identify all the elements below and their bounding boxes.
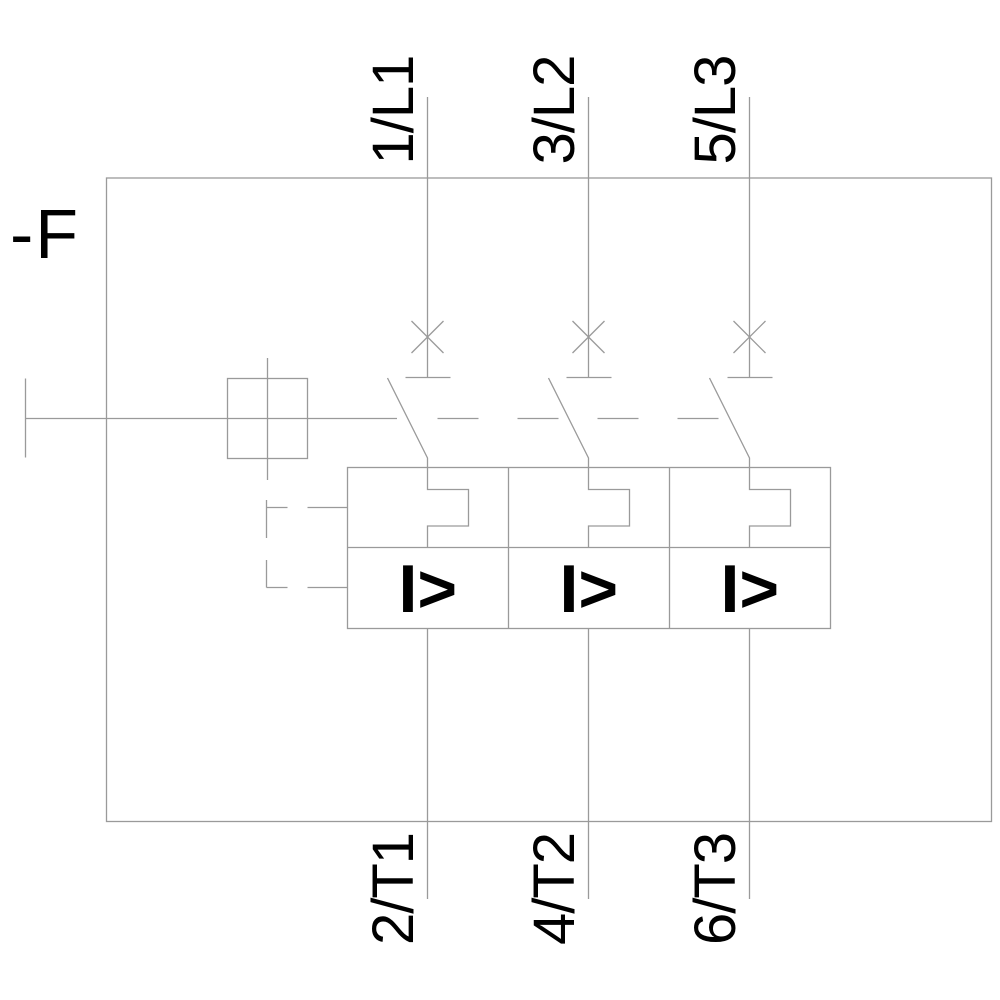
pole2-moving-contact-blade bbox=[549, 378, 589, 468]
device-outline-frame bbox=[107, 178, 992, 822]
operating-mechanism bbox=[26, 358, 731, 588]
terminal-label-6T3: 6/T3 bbox=[686, 835, 746, 945]
terminal-label-4T2: 4/T2 bbox=[525, 835, 585, 945]
pole1-thermal-overload-symbol bbox=[428, 468, 469, 548]
terminal-label-1L1: 1/L1 bbox=[364, 55, 424, 165]
schematic-line-art bbox=[0, 0, 1000, 1000]
circuit-breaker-schematic: -F 1/L1 3/L2 5/L3 2/T1 4/T2 6/T3 I> I> I… bbox=[0, 0, 1000, 1000]
terminal-label-3L2: 3/L2 bbox=[525, 55, 585, 165]
pole2-thermal-overload-symbol bbox=[589, 468, 630, 548]
terminal-label-5L3: 5/L3 bbox=[686, 55, 746, 165]
pole3-moving-contact-blade bbox=[710, 378, 750, 468]
overcurrent-trip-symbol-1: I> bbox=[399, 555, 458, 623]
pole1-moving-contact-blade bbox=[388, 378, 428, 468]
breaker-pole-3 bbox=[710, 97, 791, 899]
pole3-thermal-overload-symbol bbox=[750, 468, 791, 548]
breaker-pole-1 bbox=[388, 97, 469, 899]
overcurrent-trip-symbol-2: I> bbox=[560, 555, 619, 623]
component-designator: -F bbox=[10, 199, 80, 269]
terminal-label-2T1: 2/T1 bbox=[364, 835, 424, 945]
breaker-pole-2 bbox=[549, 97, 630, 899]
overcurrent-trip-symbol-3: I> bbox=[721, 555, 780, 623]
